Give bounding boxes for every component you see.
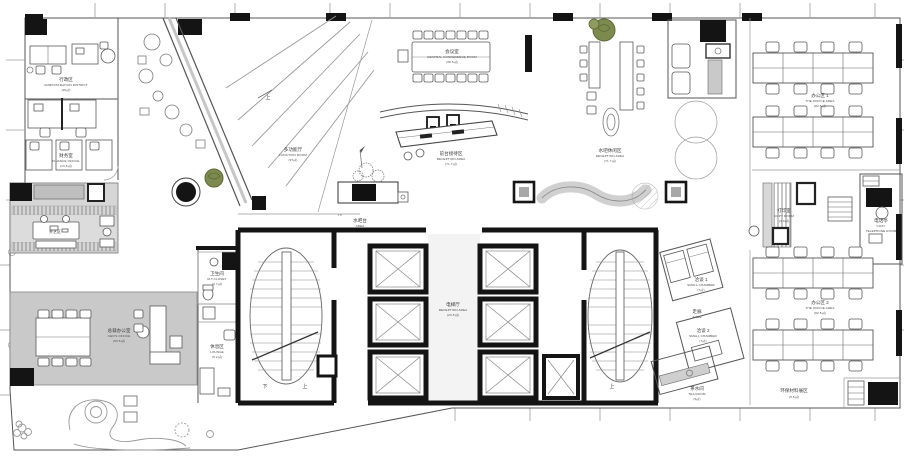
label-office2-en: THE OFFICE AREA [805, 306, 835, 310]
column-icon [176, 182, 196, 202]
label-copy-area: (3.0㎡) [779, 218, 789, 223]
label-lounge-area: (5.2㎡) [212, 354, 222, 359]
label-office1-en: THE OFFICE AREA [805, 99, 835, 103]
eco-display-area: 环保材料展区 (5.5㎡) [780, 381, 898, 405]
label-stair2-up: 上 [609, 383, 614, 390]
stair-east: 上 [588, 250, 652, 390]
label-tearoom-en: TEA ROOM [688, 392, 705, 396]
label-finance-area: (13.5㎡) [60, 163, 72, 168]
label-eco-zh: 环保材料展区 [780, 387, 808, 394]
label-reception-area: (71.7㎡) [445, 161, 457, 166]
label-tearoom-zh: 茶水间 [690, 385, 704, 392]
tea-art-room: 茶艺区 [10, 183, 118, 253]
terrace-lounge-sketch [14, 396, 214, 450]
label-office2-area: (82.5㎡) [814, 310, 826, 315]
label-function-en: FUNCTION ROOM [279, 153, 307, 157]
label-reception-en: RECEPTION AREA [437, 157, 466, 161]
label-lounge-zh: 休息区 [210, 343, 224, 350]
label-waterbar-zh: 水吧台 [353, 217, 367, 224]
label-phone-en2: TELEPHONE ROOM [866, 229, 897, 233]
label-copy-en: COPY ROOM [774, 214, 794, 218]
tv-wall: TV 水吧台 AREA (91.7㎡) [338, 146, 408, 233]
label-lounge-en: LOUNGE [210, 350, 224, 354]
stair-west: 下 上 [250, 248, 336, 390]
label-chamber2-en: SMALL CHAMBER [689, 334, 717, 338]
pantry-room [668, 20, 736, 98]
label-admin-area: (26㎡) [61, 87, 70, 92]
elevator-bank-west [370, 246, 426, 398]
label-waterbar-en: AREA [356, 224, 366, 228]
ceo-office-room: 总裁办公室 CEO'S OFFICE (53.5㎡) [10, 292, 197, 386]
label-office2-zh: 办公区 2 [811, 299, 829, 306]
label-wc-en: M.T.CLOSET [207, 277, 226, 281]
label-aisle-en: AISLE [692, 315, 701, 319]
label-tea-art: 茶艺区 [49, 228, 61, 234]
label-chamber1-zh: 洽谈 1 [694, 276, 707, 283]
office-area-1: 办公区 1 THE OFFICE AREA (82.5㎡) [753, 42, 873, 158]
label-wc-zh: 卫生间 [210, 270, 224, 277]
telephone-room: 电话亭 COZY TELEPHONE ROOM [860, 174, 902, 264]
label-finance-en: FINANCE OFFICE [52, 159, 79, 163]
label-reception-zh: 前台接待区 [440, 150, 463, 157]
label-chamber2-zh: 洽谈 2 [696, 327, 709, 334]
label-function-zh: 多功能厅 [284, 146, 303, 153]
label-wc-area: (3.7㎡) [212, 281, 222, 286]
label-ceo-zh: 总裁办公室 [108, 327, 131, 334]
label-stair1-up: 上 [302, 383, 307, 390]
label-ceo-en: CEO'S OFFICE [108, 334, 131, 338]
office-area-2: 办公区 2 THE OFFICE AREA (82.5㎡) [753, 247, 873, 371]
label-chamber1-area: (7㎡) [697, 287, 704, 292]
label-tearoom-area: (5㎡) [693, 396, 700, 401]
label-elevhall-zh: 电梯厅 [446, 301, 460, 308]
label-conference-en: CENTRAL CONFERENCE ROOM [427, 55, 477, 59]
label-aisle-zh: 走廊 [692, 308, 702, 315]
label-elevhall-en: RECEPTION AREA [439, 308, 468, 312]
label-phone-zh: 电话亭 [874, 217, 888, 224]
plant-icon [205, 169, 223, 187]
plant-icon [589, 19, 615, 41]
label-waterlounge-zh: 水吧休闲区 [599, 147, 622, 154]
label-elevhall-area: (23.5㎡) [447, 312, 459, 317]
building-core: 下 上 电梯厅 RECEPTION AREA (23.5㎡) [238, 230, 658, 403]
duct-shaft [544, 356, 578, 398]
label-chamber2-area: (7㎡) [699, 338, 706, 343]
copy-room: 打印室 COPY ROOM (3.0㎡) [749, 183, 852, 247]
label-function-area: (97㎡) [288, 157, 297, 162]
label-admin-zh: 行政区 [59, 76, 73, 83]
label-ceo-area: (53.5㎡) [113, 338, 125, 343]
label-conference-area: (38.5㎡) [446, 59, 458, 64]
label-tv: TV [338, 213, 343, 217]
label-waterlounge-area: (71.7㎡) [604, 158, 616, 163]
meeting-chambers: 洽谈 1 SMALL CHAMBER (7㎡) 走廊 AISLE 洽谈 2 SM… [651, 238, 744, 401]
label-ramp-up: 上 [265, 94, 270, 101]
floor-plan-page: 行政区 ADMINISTRATION DISTRICT (26㎡) 财务室 FI… [0, 0, 904, 459]
label-chamber1-en: SMALL CHAMBER [687, 283, 715, 287]
printer-icon [797, 183, 815, 204]
core-wc-lounge: 卫生间 M.T.CLOSET (3.7㎡) 休息区 LOUNGE (5.2㎡) [196, 248, 240, 403]
tv-screen-icon [352, 184, 376, 201]
bookshelf-icon [828, 197, 852, 221]
label-stair1-down: 下 [262, 384, 267, 390]
reception-area: 前台接待区 RECEPTION AREA (71.7㎡) [380, 104, 528, 166]
plant-cluster-icon [14, 421, 32, 439]
label-finance-zh: 财务室 [59, 152, 73, 159]
floor-plan-canvas: 行政区 ADMINISTRATION DISTRICT (26㎡) 财务室 FI… [0, 0, 904, 459]
label-office1-area: (82.5㎡) [814, 103, 826, 108]
label-conference-zh: 会议室 [445, 48, 459, 55]
elevator-bank-east [480, 246, 536, 398]
conference-room: 会议室 CENTRAL CONFERENCE ROOM (38.5㎡) [398, 31, 532, 82]
label-copy-zh: 打印室 [777, 207, 791, 214]
label-waterlounge-en: RECEPTION AREA [596, 154, 625, 158]
label-eco-area: (5.5㎡) [789, 394, 799, 399]
label-admin-en: ADMINISTRATION DISTRICT [44, 83, 88, 87]
label-phone-en: COZY [877, 224, 886, 228]
function-furniture-sketch [138, 34, 205, 148]
finance-office-room: 财务室 FINANCE OFFICE (13.5㎡) [26, 98, 118, 180]
label-office1-zh: 办公区 1 [811, 92, 829, 99]
